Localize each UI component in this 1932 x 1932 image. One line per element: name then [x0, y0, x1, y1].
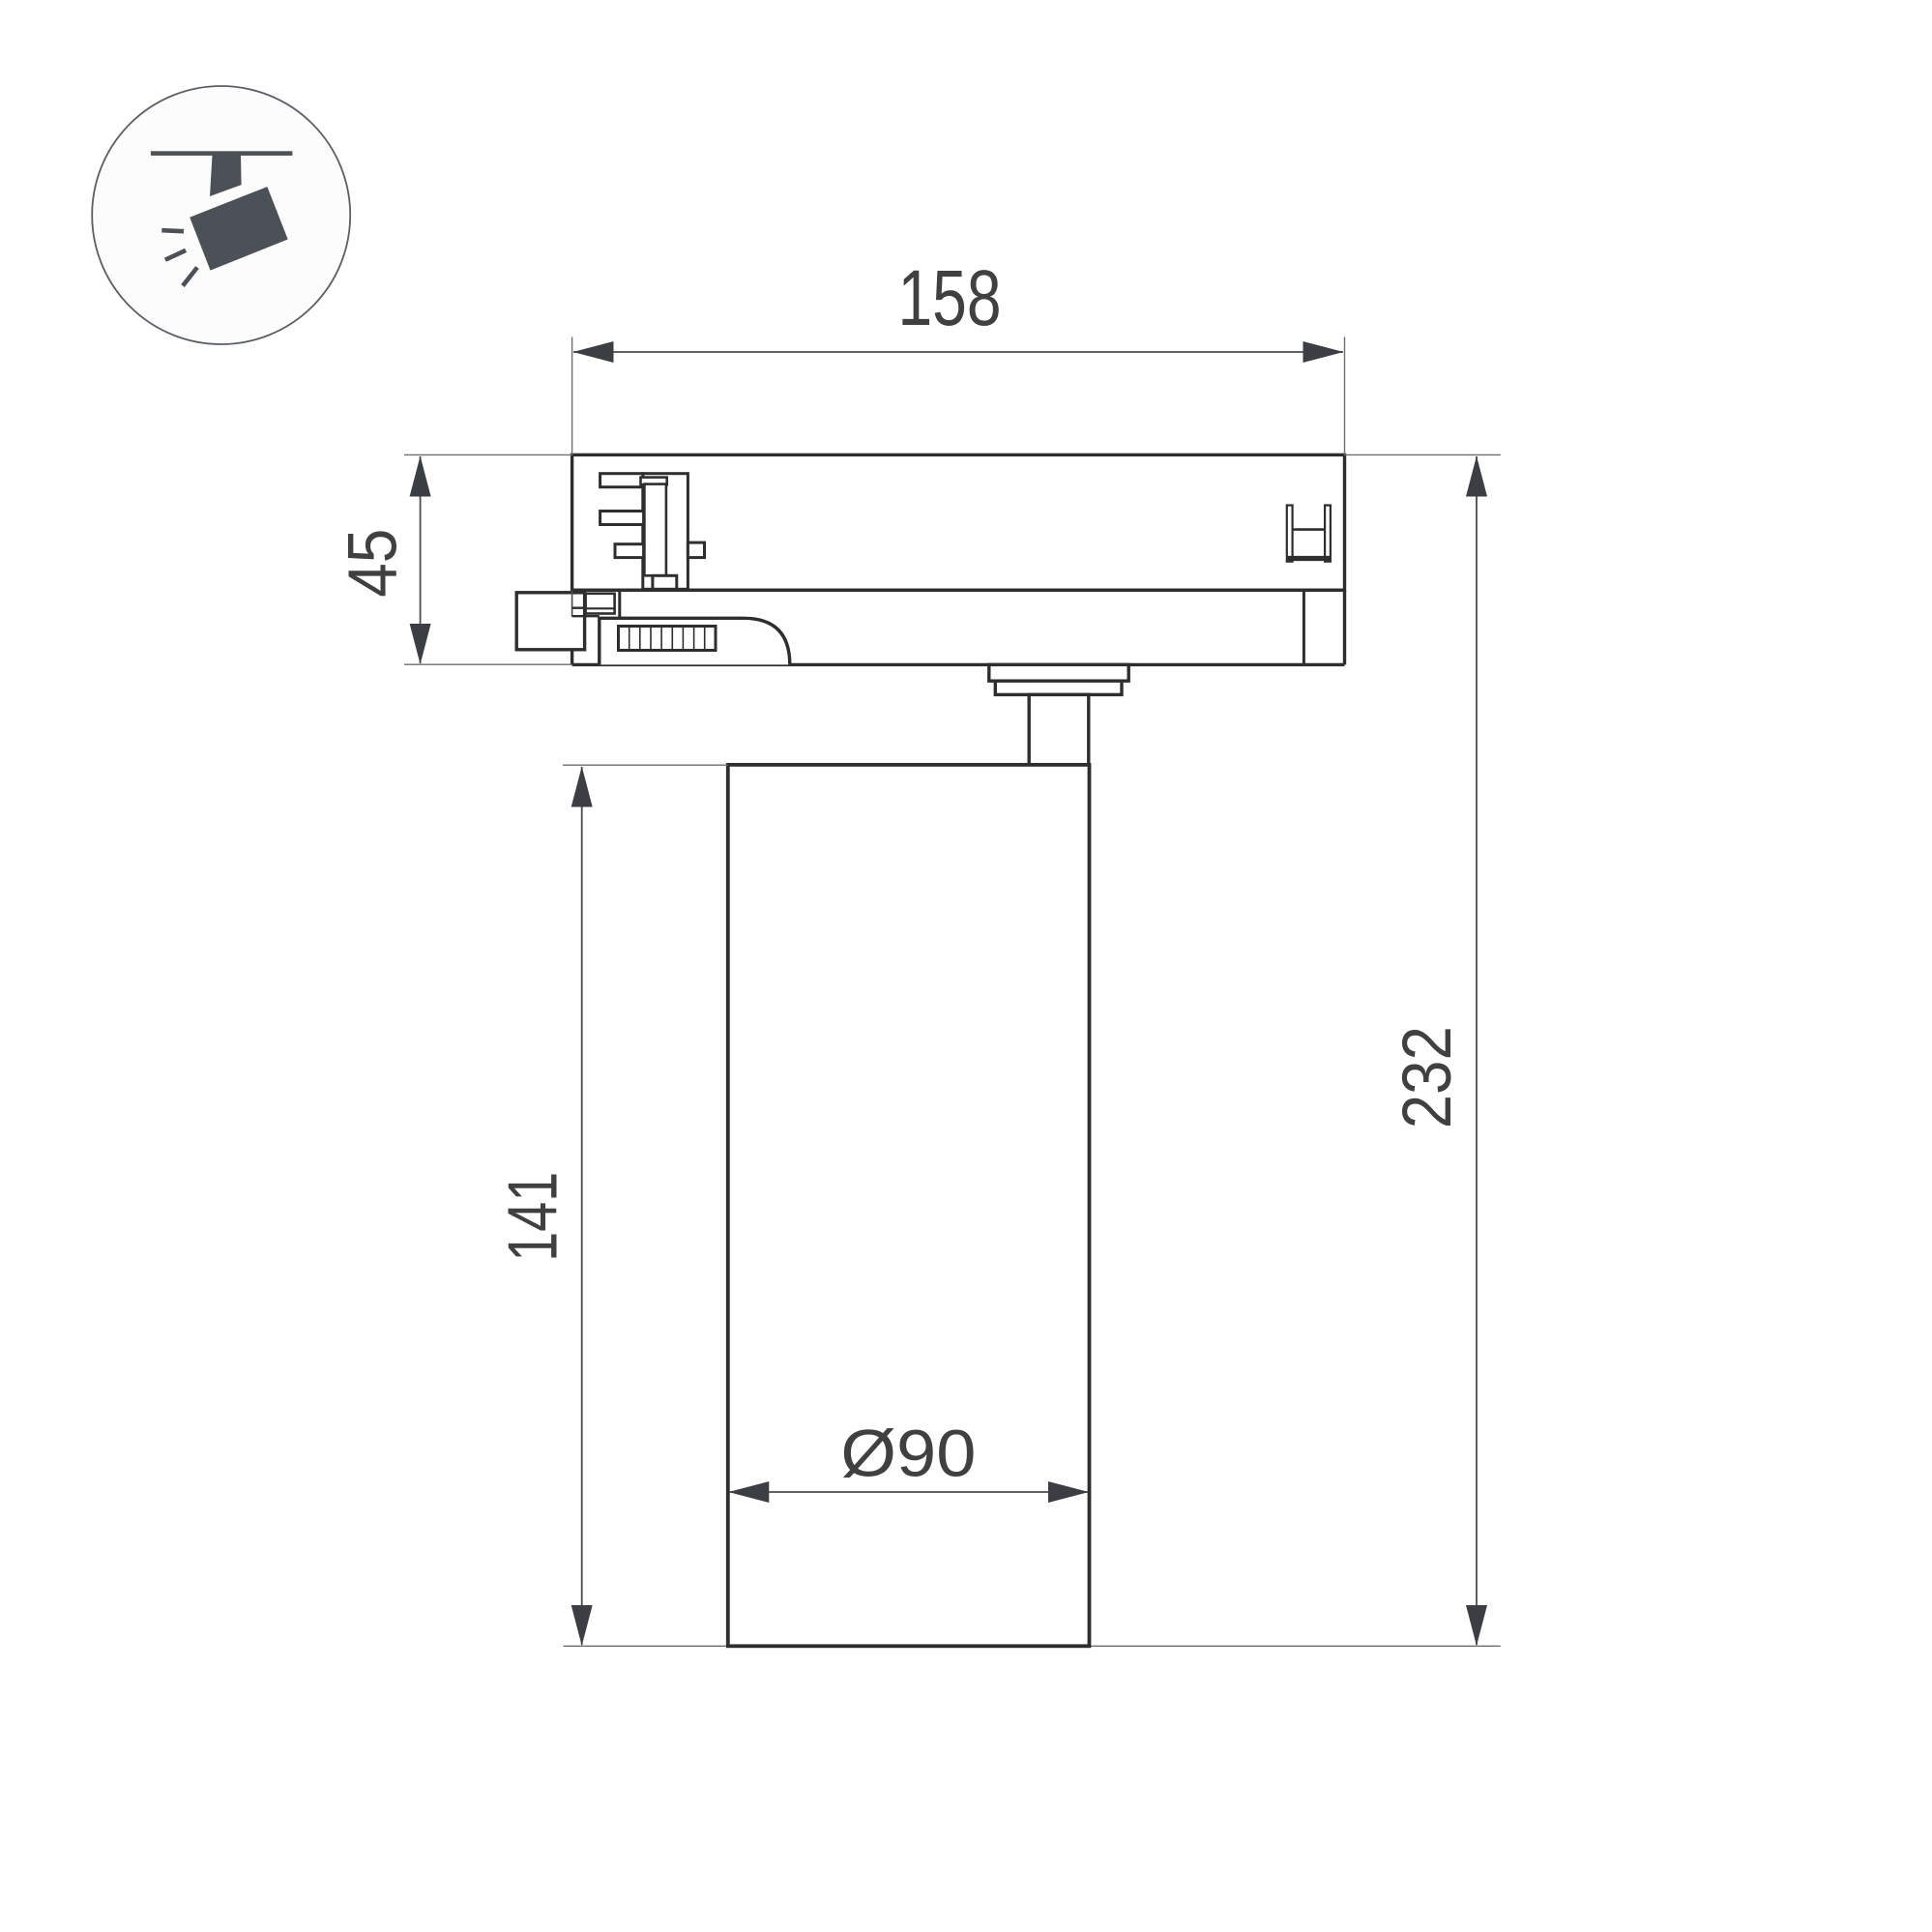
svg-text:232: 232	[1390, 1026, 1466, 1128]
svg-text:45: 45	[335, 529, 411, 598]
svg-text:141: 141	[494, 1172, 571, 1262]
svg-text:158: 158	[898, 254, 1002, 342]
svg-text:Ø90: Ø90	[840, 1417, 976, 1491]
